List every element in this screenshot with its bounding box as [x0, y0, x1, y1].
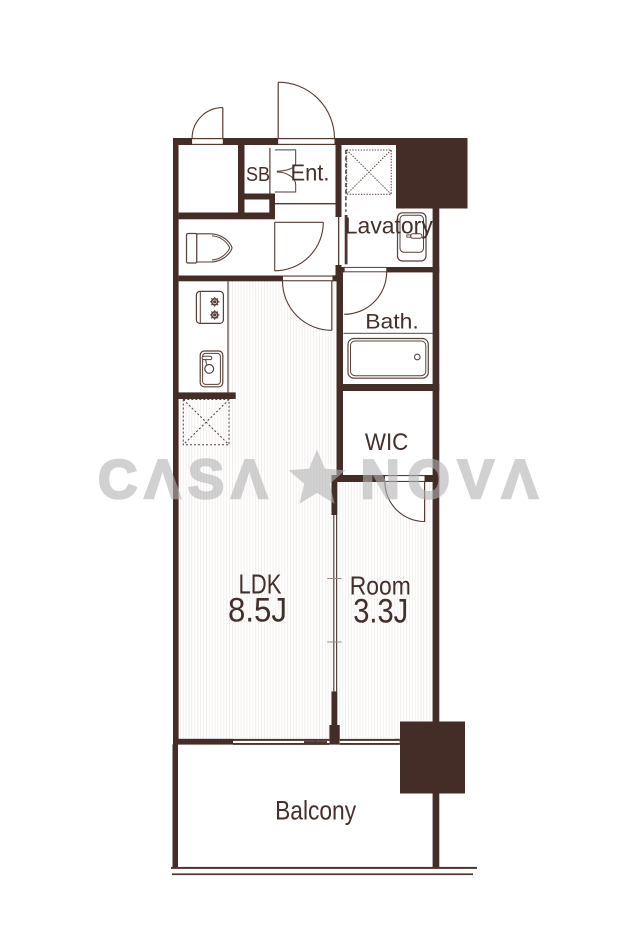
svg-text:Lavatory: Lavatory — [345, 213, 433, 239]
svg-text:SB: SB — [246, 164, 270, 186]
svg-text:Ent.: Ent. — [291, 160, 330, 186]
svg-text:Bath.: Bath. — [365, 311, 419, 334]
svg-text:Balcony: Balcony — [275, 796, 357, 826]
svg-text:NOVΛ: NOVΛ — [361, 449, 539, 510]
svg-text:8.5J: 8.5J — [228, 592, 287, 630]
svg-text:3.3J: 3.3J — [353, 593, 408, 631]
